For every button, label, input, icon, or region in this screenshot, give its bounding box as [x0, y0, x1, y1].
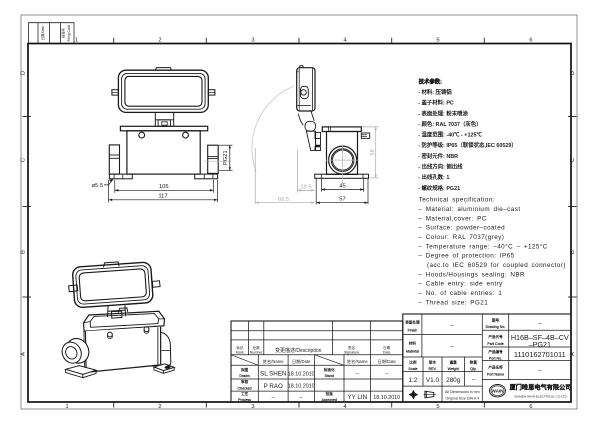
- svg-text:版本: 版本: [429, 360, 437, 365]
- svg-text:All Dimensions in mm: All Dimensions in mm: [445, 390, 480, 394]
- svg-text:Drawing No.: Drawing No.: [486, 325, 506, 329]
- svg-text:Technical specification:: Technical specification:: [419, 197, 495, 204]
- svg-text:产品代号: 产品代号: [488, 334, 503, 339]
- svg-text:2: 2: [158, 404, 161, 410]
- svg-text:- 出线孔数: 1: - 出线孔数: 1: [418, 173, 449, 181]
- svg-text:1: 1: [75, 38, 78, 44]
- svg-text:处数: 处数: [253, 345, 261, 350]
- svg-text:SL SHEN: SL SHEN: [260, 371, 286, 378]
- svg-text:–PG21: –PG21: [529, 340, 551, 349]
- svg-text:Number: Number: [250, 351, 264, 355]
- svg-text:19.5: 19.5: [301, 185, 312, 191]
- svg-text:- 螺纹规格: PG21: - 螺纹规格: PG21: [418, 184, 460, 192]
- svg-text:YY LIN: YY LIN: [348, 394, 368, 401]
- svg-text:45: 45: [339, 183, 345, 189]
- svg-text:姓名/Name: 姓名/Name: [347, 358, 368, 365]
- svg-text:1:2: 1:2: [408, 377, 417, 384]
- svg-text:Material: Material: [406, 350, 419, 354]
- svg-text:标记: 标记: [236, 345, 244, 350]
- svg-text:18.10.2010: 18.10.2010: [288, 384, 315, 390]
- svg-text:- 出线方向: 侧出线: - 出线方向: 侧出线: [418, 163, 463, 171]
- svg-text:日期: 日期: [383, 345, 391, 350]
- svg-text:1110162701011: 1110162701011: [514, 350, 566, 359]
- svg-text:B: B: [570, 250, 576, 254]
- svg-text:- 防护等级: IP65（联锁状态,IEC 60529）: - 防护等级: IP65（联锁状态,IEC 60529）: [418, 141, 517, 149]
- svg-text:C: C: [21, 158, 27, 162]
- svg-text:表面处理: 表面处理: [405, 320, 420, 325]
- svg-text:材料: 材料: [409, 341, 417, 346]
- svg-text:Drawn: Drawn: [239, 374, 249, 378]
- svg-text:Checked: Checked: [238, 386, 252, 390]
- svg-text:日期/Date: 日期/Date: [40, 26, 45, 41]
- svg-text:工艺: 工艺: [241, 391, 249, 396]
- svg-text:(acc.to IEC 60529 for coupled: (acc.to IEC 60529 for coupled connector): [427, 262, 566, 269]
- svg-text:6: 6: [529, 38, 532, 44]
- svg-text:Qty.: Qty.: [470, 367, 476, 371]
- svg-text:比例: 比例: [409, 360, 417, 365]
- svg-text:PG21: PG21: [223, 150, 229, 165]
- svg-text:Weight: Weight: [448, 367, 459, 371]
- svg-text:D: D: [570, 71, 576, 75]
- svg-text:C: C: [570, 158, 576, 162]
- svg-text:3: 3: [251, 404, 254, 410]
- svg-text:REV.: REV.: [428, 367, 436, 371]
- svg-text:- 材料: 压铸铝: - 材料: 压铸铝: [418, 88, 452, 96]
- svg-text:批准: 批准: [326, 391, 334, 396]
- svg-text:– Thread size: PG21: – Thread size: PG21: [418, 299, 488, 306]
- svg-text:– Hoods/Housings sealing: NBR: – Hoods/Housings sealing: NBR: [418, 271, 525, 278]
- svg-text:签名: 签名: [348, 345, 356, 350]
- svg-text:5: 5: [436, 404, 439, 410]
- svg-text:– Colour: RAL 7037(grey): – Colour: RAL 7037(grey): [418, 234, 504, 241]
- svg-text:D: D: [21, 71, 27, 75]
- svg-text:1: 1: [65, 404, 68, 410]
- svg-text:- 密封元件: NBR: - 密封元件: NBR: [418, 152, 458, 160]
- svg-text:6: 6: [529, 404, 532, 410]
- svg-text:Approved: Approved: [322, 398, 337, 402]
- svg-text:– No. of cable entries: 1: – No. of cable entries: 1: [418, 290, 502, 297]
- svg-text:Process: Process: [238, 398, 251, 402]
- svg-text:Port No.: Port No.: [489, 356, 502, 360]
- svg-text:58: 58: [370, 149, 376, 155]
- svg-text:Signature: Signature: [344, 351, 359, 355]
- svg-text:Stand: Stand: [324, 374, 333, 378]
- svg-text:5: 5: [436, 38, 439, 44]
- svg-text:105: 105: [159, 184, 169, 190]
- svg-text:重量: 重量: [450, 360, 458, 365]
- svg-text:产品编号: 产品编号: [488, 349, 503, 354]
- svg-text:Original Size DIN A 4: Original Size DIN A 4: [446, 397, 480, 401]
- svg-text:- 颜色: RAL 7037（灰色）: - 颜色: RAL 7037（灰色）: [418, 120, 481, 128]
- svg-text:拟图: 拟图: [241, 367, 249, 372]
- svg-text:Mark: Mark: [236, 351, 244, 355]
- svg-text:姓名/Name: 姓名/Name: [263, 358, 284, 365]
- svg-text:技术参数:: 技术参数:: [419, 77, 443, 85]
- svg-text:18.10.2010: 18.10.2010: [373, 395, 400, 401]
- svg-text:V1.0: V1.0: [426, 377, 440, 384]
- svg-text:厦门唯恩电气有限公司: 厦门唯恩电气有限公司: [509, 383, 572, 391]
- svg-text:– Material: aluminium die–cas: – Material: aluminium die–cast: [418, 206, 520, 213]
- svg-text:Port Name: Port Name: [487, 373, 504, 377]
- svg-text:A: A: [21, 352, 27, 356]
- svg-text:P RAO: P RAO: [264, 383, 283, 390]
- svg-text:- 温度范围: -40℃ - +125℃: - 温度范围: -40℃ - +125℃: [418, 131, 482, 139]
- svg-text:WAIN: WAIN: [492, 389, 505, 394]
- svg-text:Scale: Scale: [408, 367, 417, 371]
- svg-text:2: 2: [158, 38, 161, 44]
- svg-text:– Temperature range: –40°C –: – Temperature range: –40°C – +125°C: [418, 242, 547, 250]
- svg-text:Part Code: Part Code: [487, 342, 503, 346]
- svg-text:57: 57: [339, 197, 345, 203]
- svg-text:– Cable entry: side entry: – Cable entry: side entry: [418, 281, 503, 288]
- svg-text:图号: 图号: [492, 318, 500, 323]
- svg-text:280g: 280g: [446, 377, 461, 384]
- svg-text:- 表面处理: 粉末喷涂: - 表面处理: 粉末喷涂: [418, 109, 468, 117]
- svg-text:18.10.2010: 18.10.2010: [288, 371, 315, 377]
- svg-text:Filing Code: Filing Code: [67, 25, 71, 42]
- svg-text:Date: Date: [383, 351, 391, 355]
- svg-text:ø5.5: ø5.5: [92, 183, 104, 189]
- svg-text:B: B: [21, 250, 27, 254]
- svg-text:– Degree of protection: IP65: – Degree of protection: IP65: [418, 253, 514, 260]
- svg-text:审核: 审核: [241, 379, 249, 384]
- svg-text:档案号: 档案号: [61, 27, 66, 38]
- svg-text:变更描述/Description: 变更描述/Description: [275, 347, 322, 354]
- svg-text:3: 3: [251, 38, 254, 44]
- svg-text:117: 117: [158, 194, 167, 200]
- svg-text:66.5: 66.5: [278, 197, 289, 203]
- svg-text:– Material,cover: PC: – Material,cover: PC: [418, 215, 486, 222]
- svg-text:XIAMEN WAIN ELECTRICAL CO.LTD: XIAMEN WAIN ELECTRICAL CO.LTD: [514, 394, 567, 398]
- svg-text:– Surface: powder–coated: – Surface: powder–coated: [418, 225, 505, 232]
- svg-text:Finish: Finish: [408, 329, 418, 333]
- svg-text:数量: 数量: [470, 360, 478, 365]
- svg-text:标准化: 标准化: [324, 367, 335, 372]
- svg-text:- 盖子材料: PC: - 盖子材料: PC: [418, 99, 454, 107]
- svg-text:产品名称: 产品名称: [488, 365, 503, 370]
